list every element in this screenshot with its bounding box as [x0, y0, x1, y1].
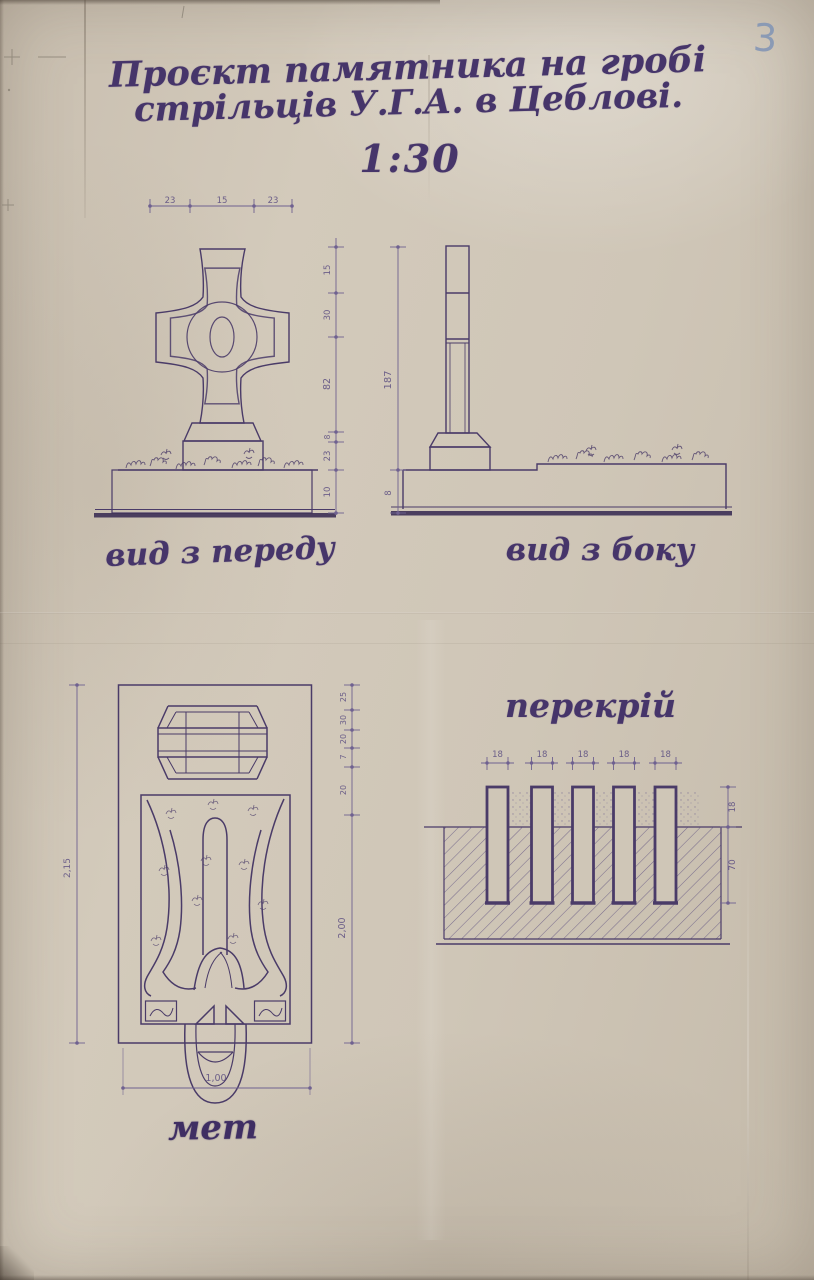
dim-label: 18 — [537, 750, 548, 760]
pedestal-cap — [184, 423, 261, 441]
plant-sketches — [548, 444, 708, 462]
plan-outer-rect — [119, 685, 312, 1043]
dim-label: 18 — [728, 802, 738, 813]
dim-label: 8 — [384, 490, 394, 495]
dim-label: 10 — [323, 487, 333, 498]
scale-annotation: 1:30 — [300, 136, 520, 181]
dim-label: 18 — [660, 750, 671, 760]
drawing-title: Проєкт памятника на гробі стрільців У.Г.… — [87, 42, 729, 130]
dim-label: 18 — [619, 750, 630, 760]
dim-label: 30 — [323, 310, 333, 321]
plan-cross-footprint — [158, 706, 267, 779]
dim-label: 23 — [323, 451, 333, 462]
ground-line — [94, 513, 336, 518]
plan-view-label: мет — [138, 1107, 289, 1150]
dim-label: 2,00 — [337, 917, 348, 938]
dim-label: 18 — [578, 750, 589, 760]
side-view-dim-labels: 187 8 — [383, 370, 394, 495]
dim-label: 2,15 — [63, 858, 73, 878]
dim-label: 18 — [492, 750, 503, 760]
plan-view-drawing — [119, 685, 312, 1103]
cross-ring — [187, 302, 257, 372]
plan-grave-bed — [141, 795, 290, 1024]
plant-sketches — [126, 448, 303, 469]
pedestal-cap-side — [430, 433, 490, 447]
front-view-drawing — [94, 249, 336, 518]
plan-view-dimensions — [69, 683, 360, 1095]
dim-label: 20 — [339, 785, 348, 795]
grave-bed-side — [403, 464, 726, 509]
side-view-label: вид з боку — [495, 532, 705, 568]
dim-label: 70 — [728, 859, 738, 871]
dim-label: 15 — [217, 196, 228, 206]
scanned-drawing-page: 23 15 23 15 30 82 8 23 10 — [0, 0, 814, 1280]
drawing-linework: 23 15 23 15 30 82 8 23 10 — [0, 0, 814, 1280]
side-view-drawing — [391, 246, 732, 516]
ground-line — [391, 511, 732, 516]
trident-ornament — [145, 799, 287, 1103]
section-view-label: перекрій — [478, 686, 703, 725]
dim-label: 187 — [383, 370, 394, 389]
dim-label: 30 — [339, 715, 348, 725]
dim-label: 23 — [268, 196, 279, 206]
section-view-drawing — [424, 787, 742, 944]
page-number: 3 — [752, 15, 778, 60]
pedestal-block-side — [430, 447, 490, 470]
dim-label: 25 — [339, 692, 348, 702]
grave-platform — [112, 470, 312, 513]
dim-label: 1,00 — [205, 1073, 226, 1084]
dim-label: 23 — [165, 196, 176, 206]
dim-label: 8 — [323, 434, 332, 439]
dim-label: 7 — [339, 754, 348, 759]
dim-label: 82 — [322, 378, 333, 390]
dim-label: 20 — [339, 734, 348, 744]
dim-label: 15 — [323, 265, 333, 276]
